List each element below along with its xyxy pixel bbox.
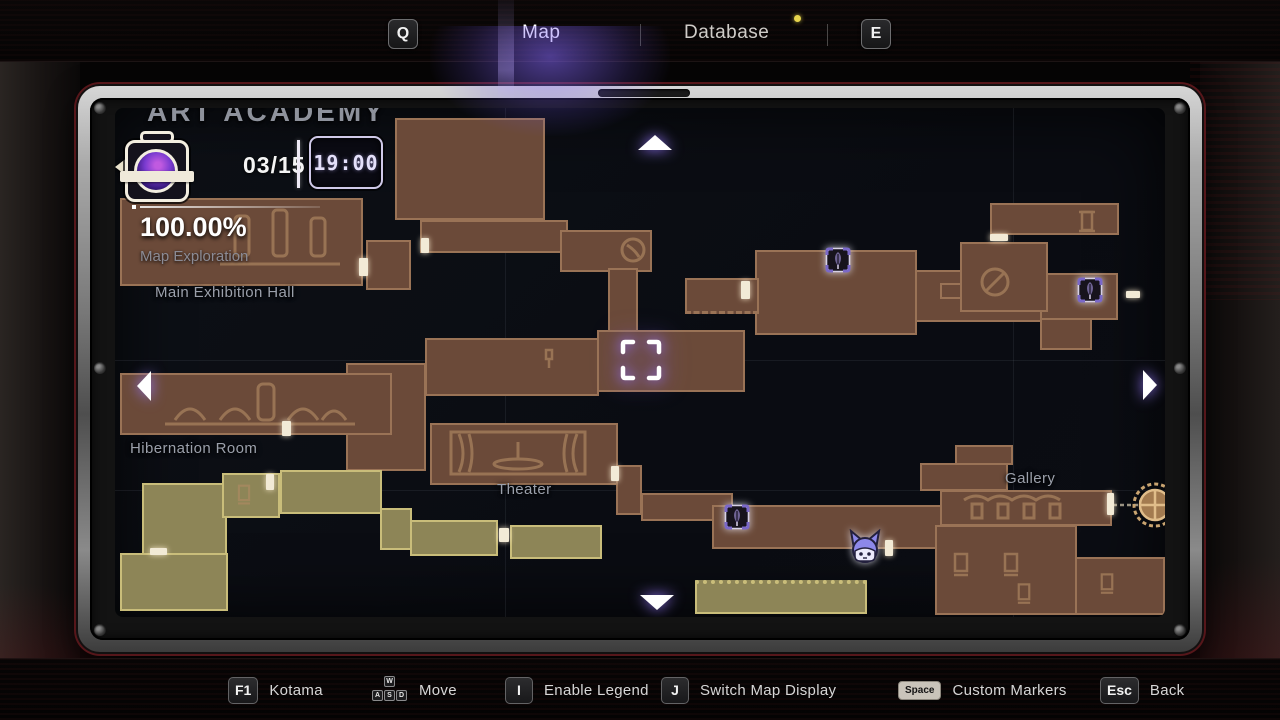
door-connector	[266, 474, 274, 490]
pan-down-arrow[interactable]	[640, 595, 674, 610]
map-device-frame: ART ACADEMY 03/15 19:00 100.00% Map Expl…	[78, 86, 1202, 652]
door-illustration	[1003, 552, 1019, 578]
pan-right-arrow[interactable]	[1143, 370, 1157, 400]
map-room	[410, 520, 498, 556]
key-hint-e[interactable]: E	[861, 19, 891, 49]
key-f1: F1	[228, 677, 258, 704]
kotama-handle	[140, 131, 174, 143]
left-wall-background	[0, 0, 80, 720]
top-tab-bar: Q Map Database E	[0, 0, 1280, 62]
map-room	[380, 508, 412, 550]
key-w: W	[384, 676, 395, 687]
tower-illustration	[1077, 206, 1097, 234]
key-space: Space	[898, 681, 941, 700]
stage-illustration	[447, 428, 589, 478]
map-room	[420, 220, 568, 253]
key-esc: Esc	[1100, 677, 1139, 704]
door-illustration	[1100, 572, 1114, 596]
door-connector	[359, 258, 368, 276]
door-connector	[1126, 291, 1140, 298]
shortcut-label: Move	[419, 682, 457, 699]
pan-up-arrow[interactable]	[638, 135, 672, 150]
kotama-strap	[120, 171, 194, 182]
map-room	[120, 553, 228, 611]
room-label: Main Exhibition Hall	[155, 284, 295, 301]
map-room	[920, 463, 1008, 491]
emblem-illustration	[977, 264, 1013, 300]
exploration-underline	[140, 206, 320, 208]
map-room	[955, 445, 1013, 465]
door-connector	[611, 466, 619, 481]
door-connector	[421, 238, 429, 253]
tab-database[interactable]: Database	[684, 22, 769, 44]
player-position-marker	[846, 529, 884, 565]
map-room	[280, 470, 382, 514]
exploration-percent: 100.00%	[140, 212, 247, 243]
door-illustration	[953, 552, 969, 578]
map-room	[395, 118, 545, 220]
key-i: I	[505, 677, 533, 704]
map-room	[510, 525, 602, 559]
shortcut-switch-map-display[interactable]: JSwitch Map Display	[661, 659, 836, 720]
kotama-device-icon	[125, 140, 189, 202]
shortcut-back[interactable]: EscBack	[1100, 659, 1184, 720]
collectible-marker	[1076, 276, 1104, 304]
right-wall-background	[1200, 0, 1280, 720]
room-label: Hibernation Room	[130, 440, 257, 457]
map-viewport[interactable]: ART ACADEMY 03/15 19:00 100.00% Map Expl…	[115, 108, 1165, 617]
map-area-title: ART ACADEMY	[147, 108, 386, 128]
screw-icon	[94, 102, 106, 114]
key-j: J	[661, 677, 689, 704]
shortcut-bar: F1KotamaWASDMoveIEnable LegendJSwitch Ma…	[0, 658, 1280, 720]
key-s: S	[384, 690, 395, 701]
screw-icon	[1174, 362, 1186, 374]
shortcut-label: Back	[1150, 682, 1185, 699]
map-room	[425, 338, 599, 396]
shortcut-label: Custom Markers	[952, 682, 1066, 699]
map-room	[1075, 557, 1165, 615]
map-room	[990, 203, 1119, 235]
screw-icon	[1174, 102, 1186, 114]
globe-illustration	[619, 236, 647, 264]
collectible-marker	[723, 503, 751, 531]
door-connector	[150, 548, 167, 555]
key-a: A	[372, 690, 383, 701]
door-connector	[885, 540, 893, 556]
key-hint-q[interactable]: Q	[388, 19, 418, 49]
pan-left-arrow[interactable]	[137, 371, 151, 401]
screw-icon	[94, 624, 106, 636]
tab-divider	[827, 24, 828, 46]
facade-illustration	[960, 494, 1082, 522]
digital-clock: 19:00	[309, 136, 383, 189]
lamp-illustration	[543, 348, 555, 370]
screw-icon	[1174, 624, 1186, 636]
door-connector	[1107, 493, 1114, 515]
door-illustration	[1017, 582, 1031, 606]
shortcut-enable-legend[interactable]: IEnable Legend	[505, 659, 649, 720]
database-notification-dot	[794, 15, 801, 22]
map-room	[940, 283, 962, 299]
room-label: Gallery	[1005, 470, 1055, 487]
shortcut-kotama[interactable]: F1Kotama	[228, 659, 323, 720]
door-connector	[990, 234, 1008, 241]
shortcut-custom-markers[interactable]: SpaceCustom Markers	[898, 659, 1067, 720]
tab-divider	[640, 24, 641, 46]
map-room	[1040, 318, 1092, 350]
hud-divider	[297, 140, 300, 188]
shortcut-label: Switch Map Display	[700, 682, 836, 699]
shortcut-label: Kotama	[269, 682, 323, 699]
door-connector	[499, 528, 509, 542]
room-label: Theater	[497, 481, 552, 498]
tab-map[interactable]: Map	[522, 22, 560, 44]
frame-speaker-notch	[598, 89, 690, 97]
map-room	[616, 465, 642, 515]
pods-illustration	[160, 380, 360, 430]
door-illustration	[237, 484, 251, 506]
collectible-marker	[824, 246, 852, 274]
door-connector	[741, 281, 750, 299]
door-connector	[282, 421, 291, 436]
shortcut-move[interactable]: WASDMove	[372, 659, 457, 720]
key-d: D	[396, 690, 407, 701]
time-display: 19:00	[313, 151, 378, 175]
exploration-label: Map Exploration	[140, 248, 248, 265]
shortcut-label: Enable Legend	[544, 682, 649, 699]
map-room	[366, 240, 411, 290]
exit-medallion-marker	[1131, 481, 1165, 529]
wasd-keys-icon: WASD	[372, 676, 408, 704]
screw-icon	[94, 362, 106, 374]
map-cursor-reticle[interactable]	[617, 336, 665, 384]
map-room	[695, 580, 867, 614]
